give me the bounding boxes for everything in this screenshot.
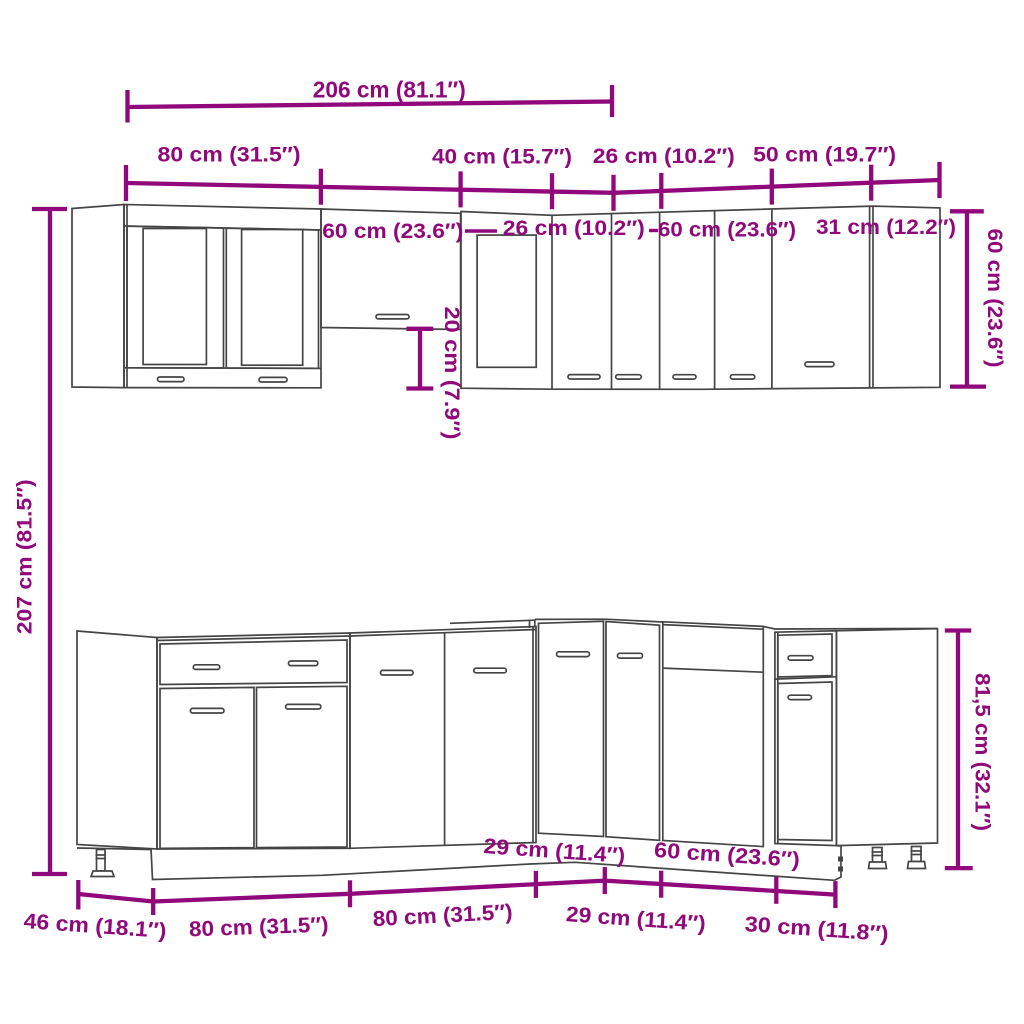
svg-text:207 cm (81.5″): 207 cm (81.5″) xyxy=(13,479,37,634)
svg-text:81,5 cm (32.1″): 81,5 cm (32.1″) xyxy=(971,673,995,831)
svg-text:60 cm (23.6″): 60 cm (23.6″) xyxy=(322,219,463,243)
svg-text:26 cm (10.2″): 26 cm (10.2″) xyxy=(503,216,645,240)
svg-text:80 cm (31.5″): 80 cm (31.5″) xyxy=(158,143,301,167)
svg-text:40 cm (15.7″): 40 cm (15.7″) xyxy=(432,144,572,168)
svg-text:26 cm (10.2″): 26 cm (10.2″) xyxy=(593,144,735,168)
svg-text:80 cm (31.5″): 80 cm (31.5″) xyxy=(189,913,329,942)
svg-text:206 cm (81.1″): 206 cm (81.1″) xyxy=(313,76,466,102)
svg-text:20 cm (7.9″): 20 cm (7.9″) xyxy=(440,307,464,440)
svg-text:50 cm (19.7″): 50 cm (19.7″) xyxy=(753,143,896,167)
svg-text:60 cm (23.6″): 60 cm (23.6″) xyxy=(658,218,796,242)
svg-text:60 cm (23.6″): 60 cm (23.6″) xyxy=(983,229,1007,368)
svg-text:31 cm (12.2″): 31 cm (12.2″) xyxy=(816,215,956,239)
